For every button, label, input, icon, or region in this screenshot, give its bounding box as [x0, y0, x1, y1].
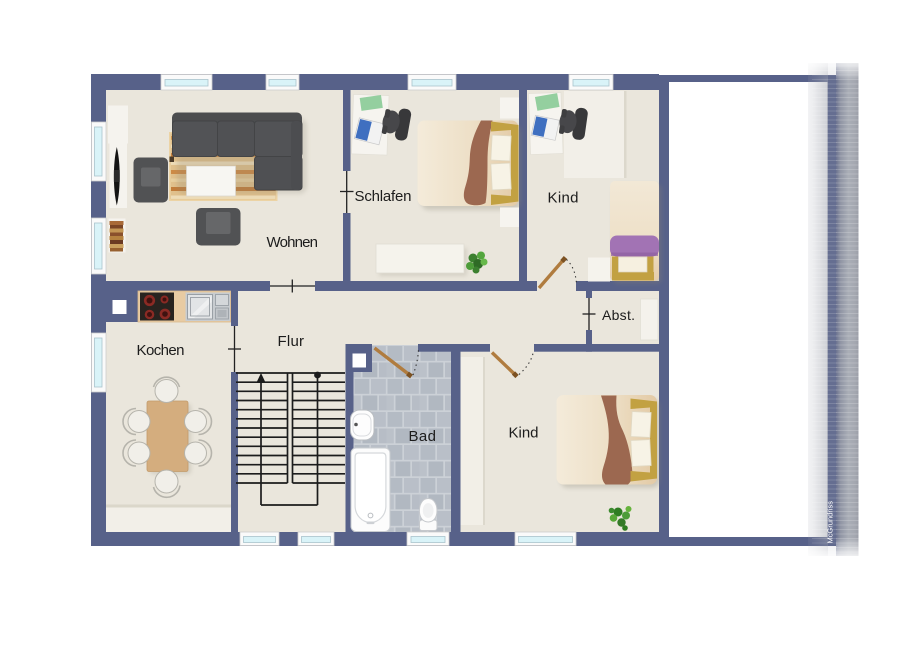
svg-text:Wohnen: Wohnen [267, 234, 319, 251]
svg-text:Kochen: Kochen [137, 342, 185, 359]
svg-text:Abst.: Abst. [602, 307, 635, 323]
svg-text:Schlafen: Schlafen [355, 188, 412, 205]
svg-text:Kind: Kind [509, 425, 539, 442]
svg-text:McGrundriss: McGrundriss [826, 501, 835, 544]
svg-text:Kind: Kind [548, 190, 579, 207]
svg-text:Bad: Bad [409, 428, 437, 445]
svg-text:Flur: Flur [278, 333, 305, 350]
